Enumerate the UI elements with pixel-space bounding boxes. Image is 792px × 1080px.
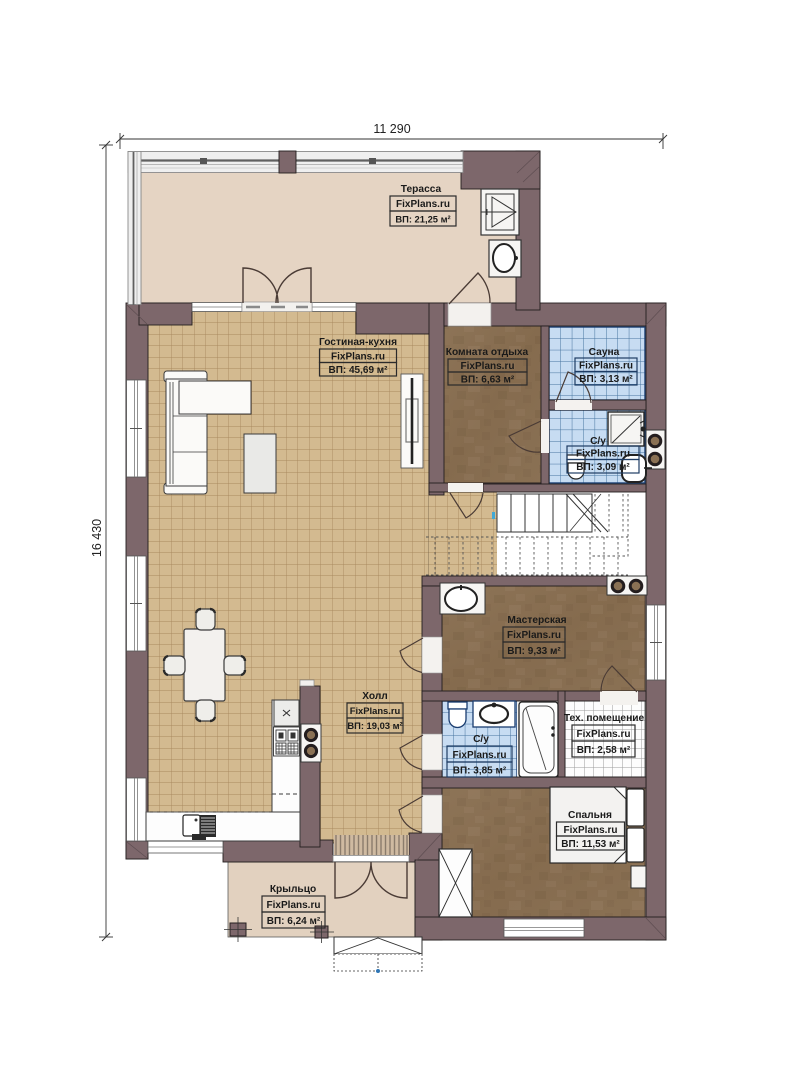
svg-text:FixPlans.ru: FixPlans.ru — [461, 361, 515, 372]
svg-text:ВП: 9,33 м²: ВП: 9,33 м² — [507, 646, 561, 657]
svg-text:ВП: 19,03 м²: ВП: 19,03 м² — [347, 720, 402, 731]
svg-text:Холл: Холл — [362, 691, 388, 702]
svg-text:FixPlans.ru: FixPlans.ru — [507, 630, 561, 641]
svg-text:ВП: 21,25 м²: ВП: 21,25 м² — [395, 214, 450, 225]
svg-text:FixPlans.ru: FixPlans.ru — [453, 750, 507, 761]
svg-text:11 290: 11 290 — [373, 122, 410, 136]
svg-text:Терасса: Терасса — [401, 184, 442, 195]
svg-text:Спальня: Спальня — [568, 810, 612, 821]
svg-text:ВП: 3,85 м²: ВП: 3,85 м² — [453, 766, 507, 777]
svg-text:Мастерская: Мастерская — [507, 615, 566, 626]
svg-text:С/у: С/у — [473, 734, 489, 745]
svg-text:ВП: 2,58 м²: ВП: 2,58 м² — [577, 745, 631, 756]
svg-text:Крыльцо: Крыльцо — [270, 884, 316, 895]
svg-text:ВП: 11,53 м²: ВП: 11,53 м² — [561, 839, 620, 850]
svg-text:Комната отдыха: Комната отдыха — [446, 347, 529, 358]
svg-text:FixPlans.ru: FixPlans.ru — [267, 900, 321, 911]
svg-text:FixPlans.ru: FixPlans.ru — [564, 825, 618, 836]
svg-text:FixPlans.ru: FixPlans.ru — [579, 361, 633, 372]
svg-text:Тех. помещение: Тех. помещение — [564, 713, 645, 724]
svg-text:FixPlans.ru: FixPlans.ru — [331, 352, 385, 363]
svg-text:ВП: 3,09 м²: ВП: 3,09 м² — [576, 462, 630, 473]
svg-text:FixPlans.ru: FixPlans.ru — [576, 449, 630, 460]
svg-text:FixPlans.ru: FixPlans.ru — [350, 705, 401, 716]
svg-text:FixPlans.ru: FixPlans.ru — [577, 729, 631, 740]
svg-text:Гостиная-кухня: Гостиная-кухня — [319, 337, 397, 348]
svg-text:16 430: 16 430 — [90, 519, 104, 557]
svg-text:FixPlans.ru: FixPlans.ru — [396, 199, 450, 210]
svg-text:ВП: 6,24 м²: ВП: 6,24 м² — [267, 916, 321, 927]
svg-text:С/у: С/у — [590, 436, 606, 447]
svg-text:Сауна: Сауна — [589, 347, 620, 358]
svg-text:ВП: 45,69 м²: ВП: 45,69 м² — [328, 365, 388, 376]
svg-text:ВП: 3,13 м²: ВП: 3,13 м² — [579, 374, 633, 385]
svg-text:ВП: 6,63 м²: ВП: 6,63 м² — [461, 375, 515, 386]
